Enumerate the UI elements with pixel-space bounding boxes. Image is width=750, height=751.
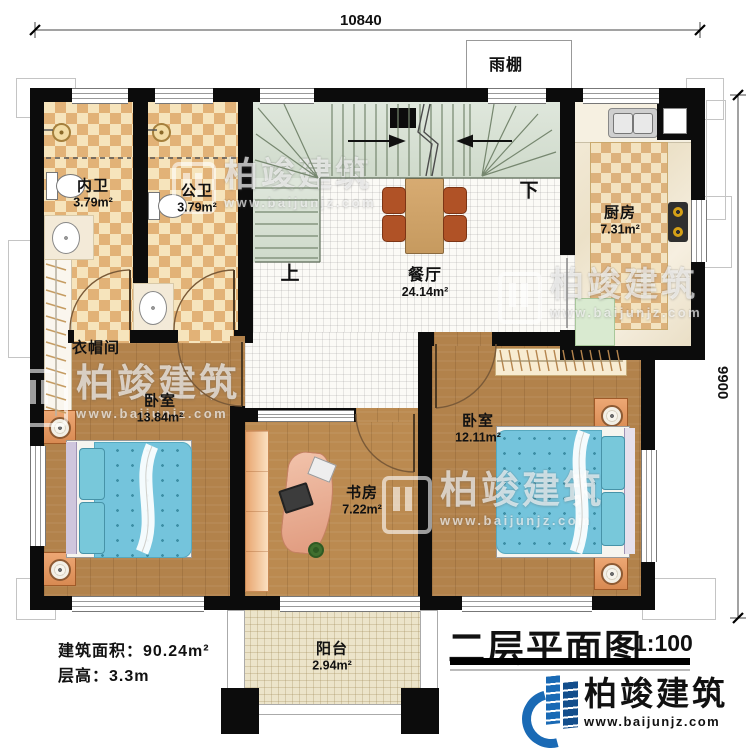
door-opening bbox=[434, 332, 492, 346]
company-logo: 柏竣建筑 www.baijunjz.com bbox=[522, 676, 728, 736]
study-cabinet bbox=[245, 430, 269, 592]
chair-icon bbox=[443, 215, 467, 242]
door-opening bbox=[560, 255, 575, 330]
study-label: 书房 7.22m² bbox=[342, 486, 382, 517]
stove-icon bbox=[668, 202, 688, 242]
room-area: 7.22m² bbox=[342, 502, 382, 516]
wall bbox=[133, 102, 148, 283]
company-logo-icon bbox=[522, 676, 584, 736]
bed-blanket bbox=[496, 430, 602, 554]
company-website: www.baijunjz.com bbox=[584, 714, 728, 729]
room-name: 阳台 bbox=[312, 642, 352, 659]
room-name: 书房 bbox=[342, 486, 382, 503]
stair-down-label: 下 bbox=[519, 176, 538, 203]
room-area: 12.11m² bbox=[455, 430, 501, 444]
room-area: 7.31m² bbox=[600, 222, 640, 236]
lamp-icon bbox=[49, 559, 71, 581]
plan-scale: 1:100 bbox=[634, 630, 693, 657]
balcony-sliding-door bbox=[280, 596, 420, 612]
pillow-icon bbox=[79, 448, 105, 500]
room-name: 餐厅 bbox=[402, 267, 449, 285]
window bbox=[30, 446, 46, 546]
window bbox=[488, 88, 546, 104]
shower-head-icon bbox=[52, 123, 71, 142]
bed-blanket bbox=[94, 442, 192, 558]
window bbox=[691, 200, 707, 262]
title-underline-thin bbox=[450, 669, 690, 671]
window bbox=[641, 450, 657, 562]
shower-head-icon bbox=[152, 123, 171, 142]
room-area: 2.94m² bbox=[312, 658, 352, 672]
bath-public-label: 公卫 3.79m² bbox=[177, 184, 217, 215]
floor-plan-canvas: 雨棚 bbox=[0, 0, 750, 751]
balcony-pillar bbox=[401, 688, 439, 734]
chair-icon bbox=[382, 187, 406, 214]
room-area: 3.79m² bbox=[73, 195, 113, 209]
window bbox=[583, 88, 659, 104]
balcony-label: 阳台 2.94m² bbox=[312, 642, 352, 673]
pillow-icon bbox=[79, 502, 105, 554]
window bbox=[260, 88, 314, 104]
building-area-note: 建筑面积：90.24m² bbox=[58, 637, 210, 661]
title-underline bbox=[450, 658, 690, 665]
room-area: 13.84m² bbox=[137, 410, 184, 424]
room-name: 卧室 bbox=[455, 414, 501, 431]
dining-table bbox=[405, 178, 444, 254]
bedroom-right-label: 卧室 12.11m² bbox=[455, 414, 501, 445]
interior-window bbox=[258, 410, 354, 422]
window bbox=[72, 596, 204, 612]
door-opening bbox=[230, 336, 245, 406]
nightstand bbox=[594, 556, 628, 590]
lamp-icon bbox=[49, 417, 71, 439]
stair-flight-floor bbox=[253, 178, 320, 262]
door-opening bbox=[178, 330, 234, 343]
pillow-icon bbox=[601, 436, 625, 490]
stair-column bbox=[390, 108, 416, 128]
lamp-icon bbox=[601, 405, 623, 427]
chair-icon bbox=[443, 187, 467, 214]
room-area: 24.14m² bbox=[402, 285, 449, 299]
window bbox=[72, 88, 128, 104]
bedroom-left-label: 卧室 13.84m² bbox=[137, 394, 184, 425]
wall bbox=[238, 102, 253, 330]
dining-label: 餐厅 24.14m² bbox=[402, 267, 449, 299]
kitchen-mat bbox=[575, 298, 615, 346]
dimension-width: 10840 bbox=[340, 12, 382, 29]
chair-icon bbox=[382, 215, 406, 242]
room-name: 衣帽间 bbox=[72, 341, 120, 358]
kitchen-label: 厨房 7.31m² bbox=[600, 206, 640, 237]
canopy-name: 雨棚 bbox=[489, 57, 523, 75]
kitchen-sink-icon bbox=[608, 108, 658, 138]
door-opening bbox=[356, 408, 418, 422]
bath-inner-label: 内卫 3.79m² bbox=[73, 179, 113, 210]
eave-outline bbox=[704, 196, 732, 268]
floor-height-note: 层高：3.3m bbox=[58, 662, 149, 686]
bed-headboard bbox=[624, 428, 635, 554]
canopy-label: 雨棚 bbox=[489, 57, 523, 75]
room-name: 内卫 bbox=[73, 179, 113, 196]
stair-up-label: 上 bbox=[280, 259, 299, 286]
pillow-icon bbox=[601, 492, 625, 546]
plant-icon bbox=[308, 542, 324, 558]
wash-basin-icon bbox=[139, 291, 167, 325]
room-name: 厨房 bbox=[600, 206, 640, 223]
bed-headboard bbox=[66, 442, 77, 554]
room-area: 3.79m² bbox=[177, 200, 217, 214]
dimension-depth: 9900 bbox=[714, 366, 731, 399]
nightstand bbox=[42, 410, 76, 444]
wash-basin-icon bbox=[52, 222, 80, 254]
bay-window bbox=[663, 108, 687, 134]
lamp-icon bbox=[601, 563, 623, 585]
study-floor bbox=[245, 422, 418, 596]
room-name: 卧室 bbox=[137, 394, 184, 411]
wall bbox=[560, 346, 705, 360]
company-name: 柏竣建筑 bbox=[584, 676, 728, 712]
wall bbox=[418, 332, 432, 610]
room-name: 公卫 bbox=[177, 184, 217, 201]
window bbox=[155, 88, 213, 104]
balcony-pillar bbox=[221, 688, 259, 734]
window bbox=[462, 596, 592, 612]
cloakroom-label: 衣帽间 bbox=[72, 341, 120, 358]
